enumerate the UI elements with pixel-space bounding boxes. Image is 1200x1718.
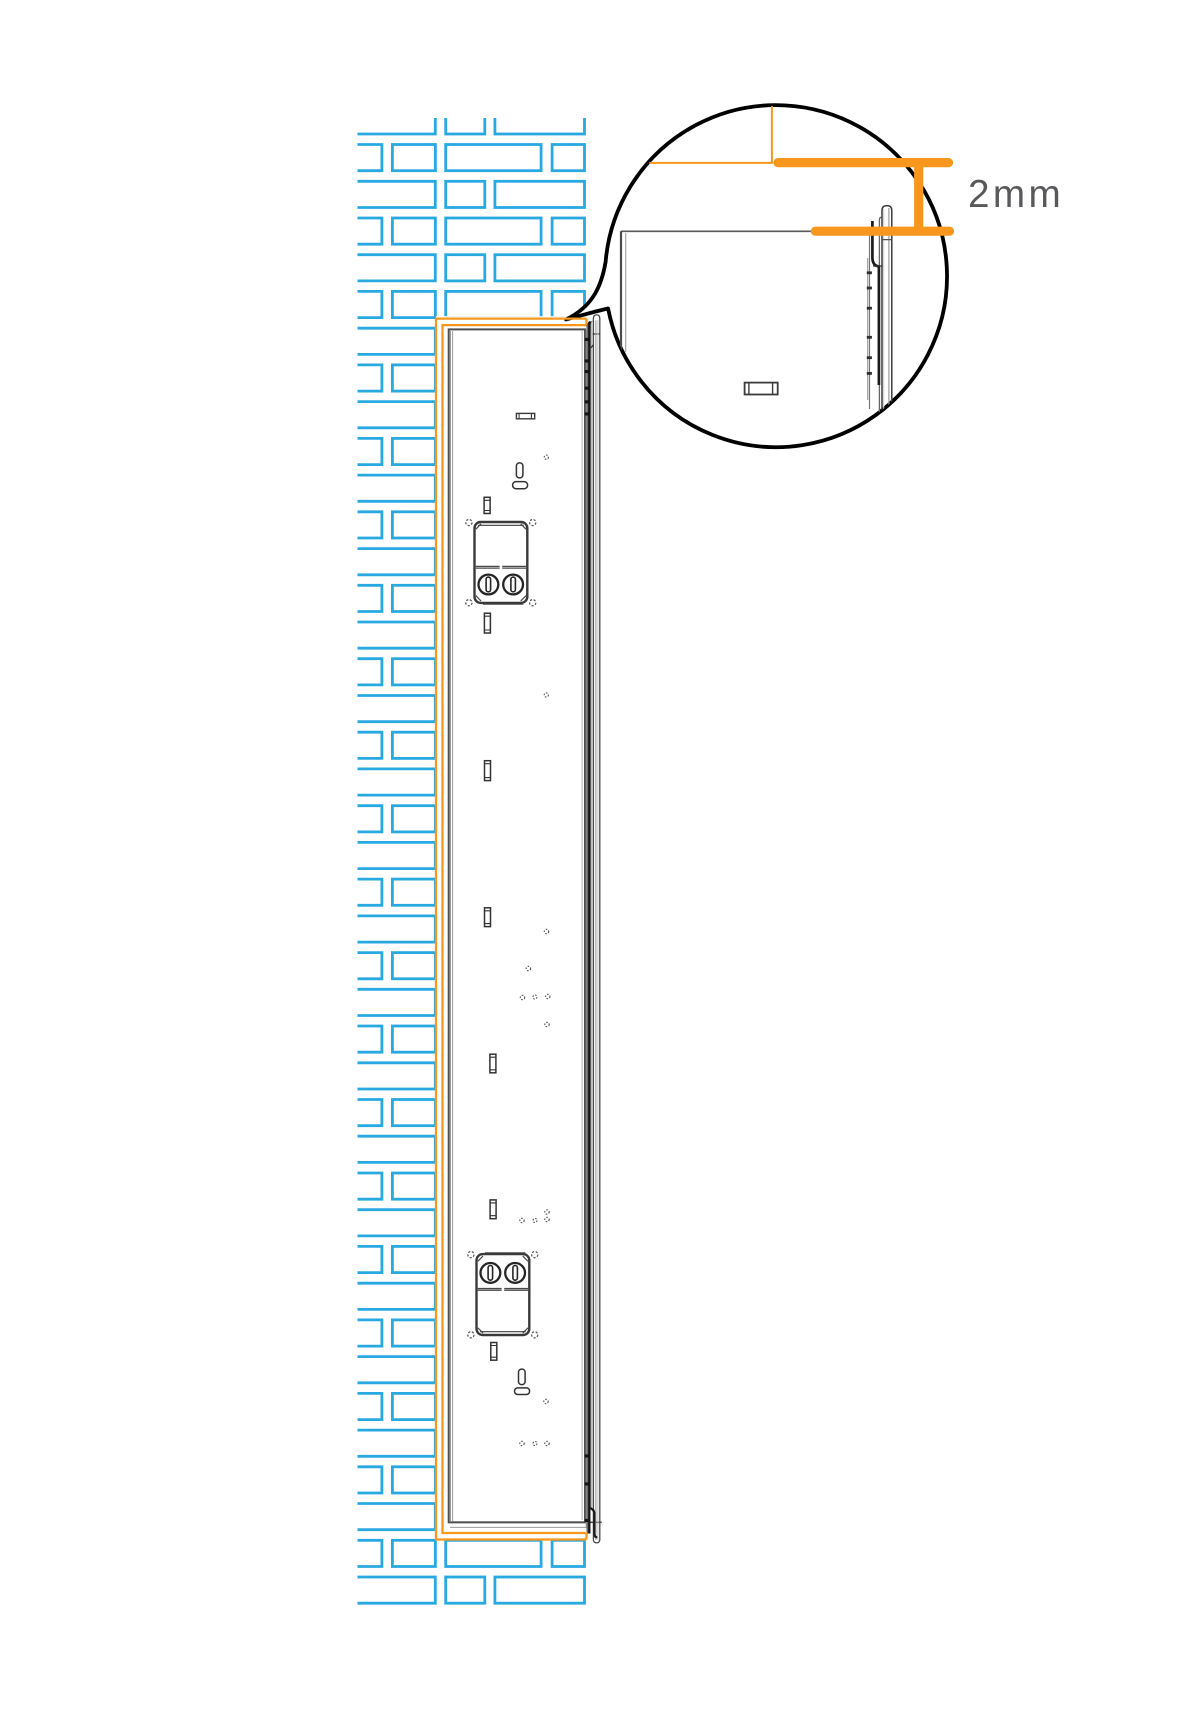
svg-text:2mm: 2mm — [968, 173, 1064, 216]
